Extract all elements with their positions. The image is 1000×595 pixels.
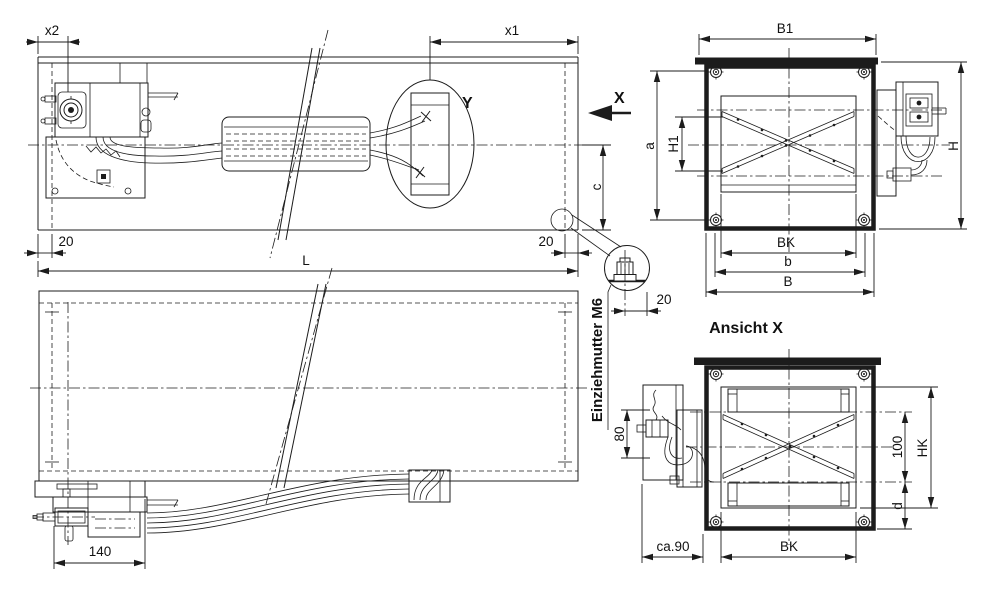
dim-label-140: 140 [89, 544, 112, 559]
dim-label-x2: x2 [45, 23, 59, 38]
view-x-arrow: X [588, 90, 631, 121]
view-x-heading: Ansicht X [709, 320, 783, 337]
cross-slats-x [723, 415, 854, 479]
break-lines [270, 30, 328, 258]
dim-label-100: 100 [890, 436, 905, 459]
side-view-dimensions: x2 x1 20 L 20 [24, 23, 631, 277]
dim-label-x1: x1 [505, 23, 519, 38]
cross-slats [722, 112, 854, 174]
dim-label-20-left: 20 [58, 234, 73, 249]
dim-label-bk-bottom: BK [780, 539, 798, 554]
dim-label-bk-front: BK [777, 235, 795, 250]
blade-channels [728, 389, 849, 506]
dim-label-hk: HK [915, 439, 930, 458]
front-actuator [877, 82, 946, 196]
drawing-canvas: Y x2 x1 20 L [0, 0, 1000, 595]
front-view: B1 a H1 H BK b [642, 21, 967, 297]
top-wires [147, 470, 450, 533]
detail-y-label: Y [462, 95, 473, 112]
front-frame [707, 67, 874, 229]
view-x: Ansicht X [612, 320, 938, 563]
cable-conduit [222, 117, 370, 171]
view-x-arrow-label: X [614, 90, 625, 107]
note-einziehmutter: Einziehmutter M6 [589, 298, 606, 422]
front-flange [695, 58, 878, 65]
dim-label-b1: B1 [777, 21, 794, 36]
dim-label-20-right: 20 [538, 234, 553, 249]
detail-y: Y [386, 80, 474, 208]
dim-label-ca90: ca.90 [656, 539, 689, 554]
dim-label-c: c [589, 183, 604, 190]
dim-label-d: d [890, 502, 905, 510]
side-view: Y x2 x1 20 L [24, 23, 631, 277]
dim-label-length: L [302, 253, 310, 268]
detail-callout-circle [551, 209, 573, 231]
view-x-flange [694, 358, 881, 366]
dim-label-b-small: b [784, 254, 792, 269]
view-x-dimensions: 80 100 d HK BK ca.90 [612, 387, 938, 563]
dim-label-80: 80 [612, 426, 627, 441]
technical-drawing-page: Y x2 x1 20 L [0, 0, 1000, 595]
view-x-opening [721, 387, 856, 508]
view-x-actuator [637, 385, 714, 487]
dim-label-20-detail: 20 [656, 292, 671, 307]
dim-label-a: a [642, 142, 657, 150]
detail-m6: 20 Einziehmutter M6 [589, 246, 672, 431]
dim-label-b-outer: B [783, 274, 792, 289]
screw-icon [857, 213, 872, 228]
dim-label-h1: H1 [666, 135, 681, 152]
servo-actuator [41, 83, 178, 198]
dim-label-h: H [946, 141, 961, 151]
top-view: 140 [30, 268, 590, 569]
top-view-dimensions: 140 [54, 499, 145, 569]
duct-outline-top [30, 291, 590, 545]
top-actuator [33, 481, 178, 541]
